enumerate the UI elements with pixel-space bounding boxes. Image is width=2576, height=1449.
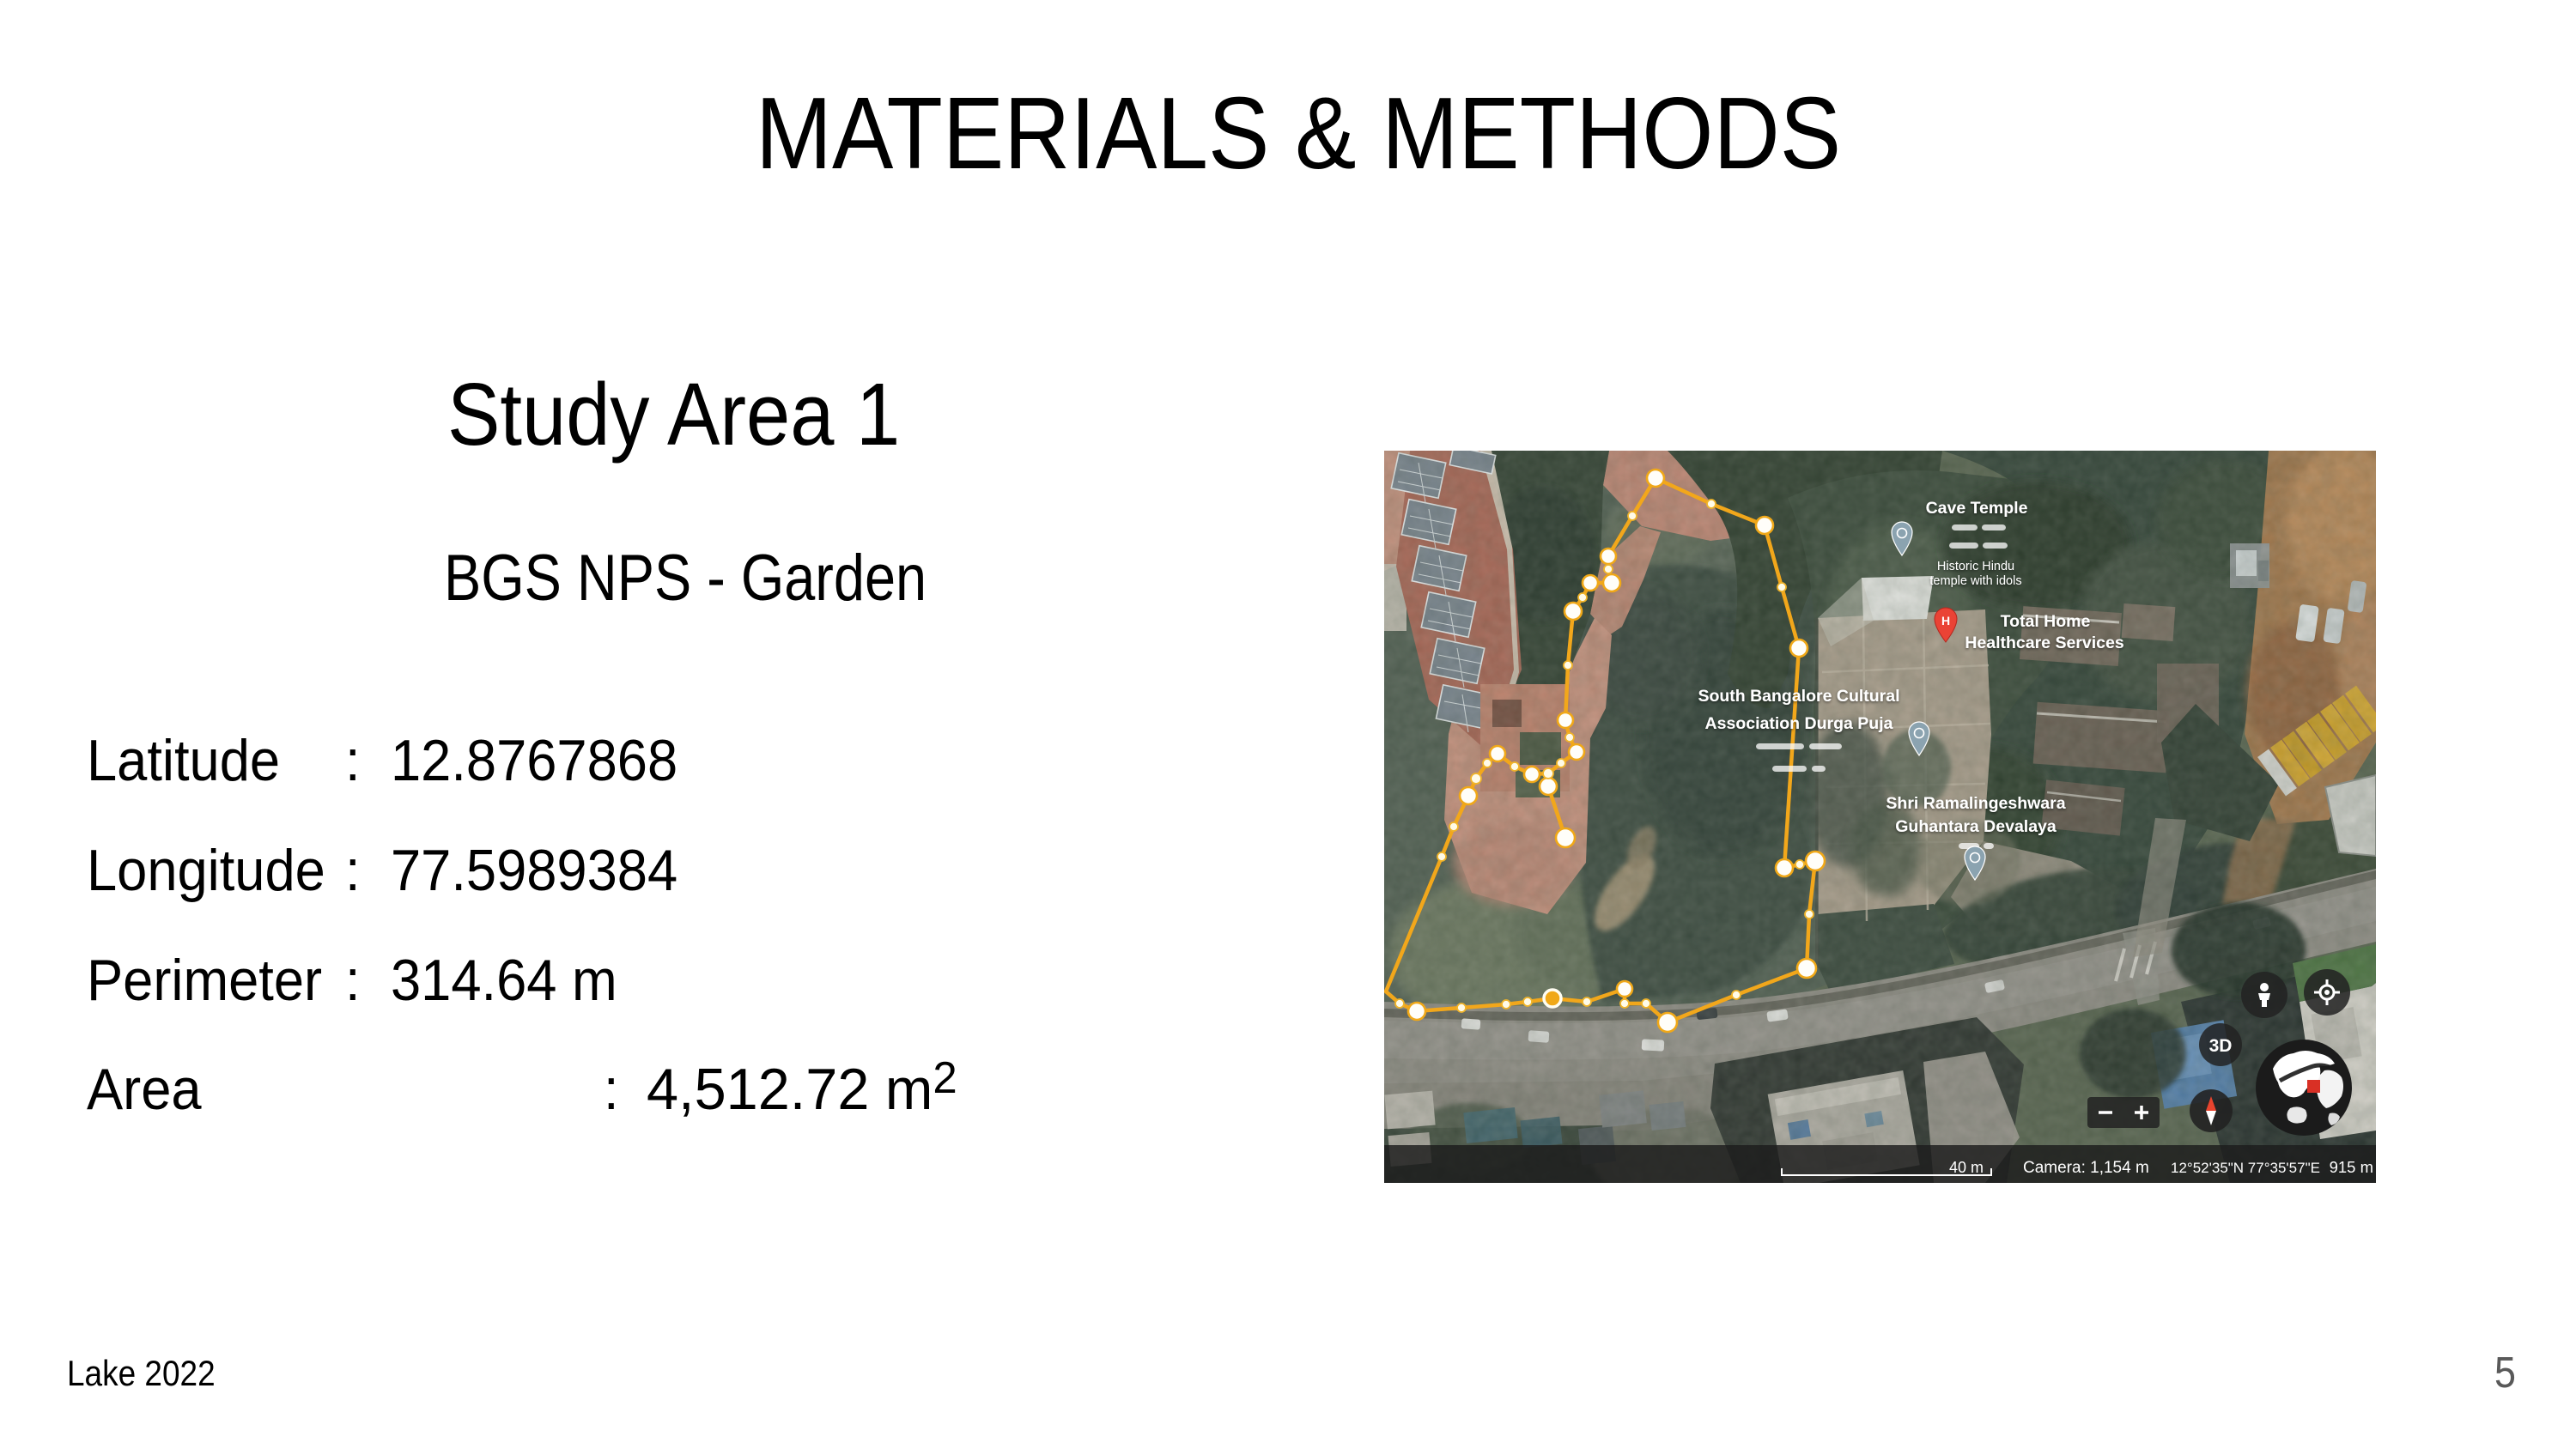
svg-text:915 m: 915 m bbox=[2330, 1158, 2373, 1176]
svg-text:temple with idols: temple with idols bbox=[1929, 574, 2021, 588]
svg-text:Camera: 1,154 m: Camera: 1,154 m bbox=[2023, 1159, 2149, 1177]
svg-text:Guhantara Devalaya: Guhantara Devalaya bbox=[1895, 817, 2057, 836]
svg-text:South Bangalore Cultural: South Bangalore Cultural bbox=[1698, 687, 1899, 706]
svg-text:3D: 3D bbox=[2209, 1036, 2233, 1056]
svg-text:Cave Temple: Cave Temple bbox=[1926, 499, 2028, 518]
svg-text:Association Durga Puja: Association Durga Puja bbox=[1705, 714, 1893, 733]
svg-text:Total Home: Total Home bbox=[2001, 612, 2091, 631]
svg-text:H: H bbox=[1941, 614, 1950, 627]
svg-text:Historic Hindu: Historic Hindu bbox=[1937, 560, 2014, 573]
svg-text:Shri Ramalingeshwara: Shri Ramalingeshwara bbox=[1886, 794, 2065, 813]
svg-text:40 m: 40 m bbox=[1949, 1159, 1984, 1176]
svg-text:Healthcare Services: Healthcare Services bbox=[1965, 634, 2124, 652]
svg-text:12°52'35"N 77°35'57"E: 12°52'35"N 77°35'57"E bbox=[2171, 1160, 2320, 1176]
